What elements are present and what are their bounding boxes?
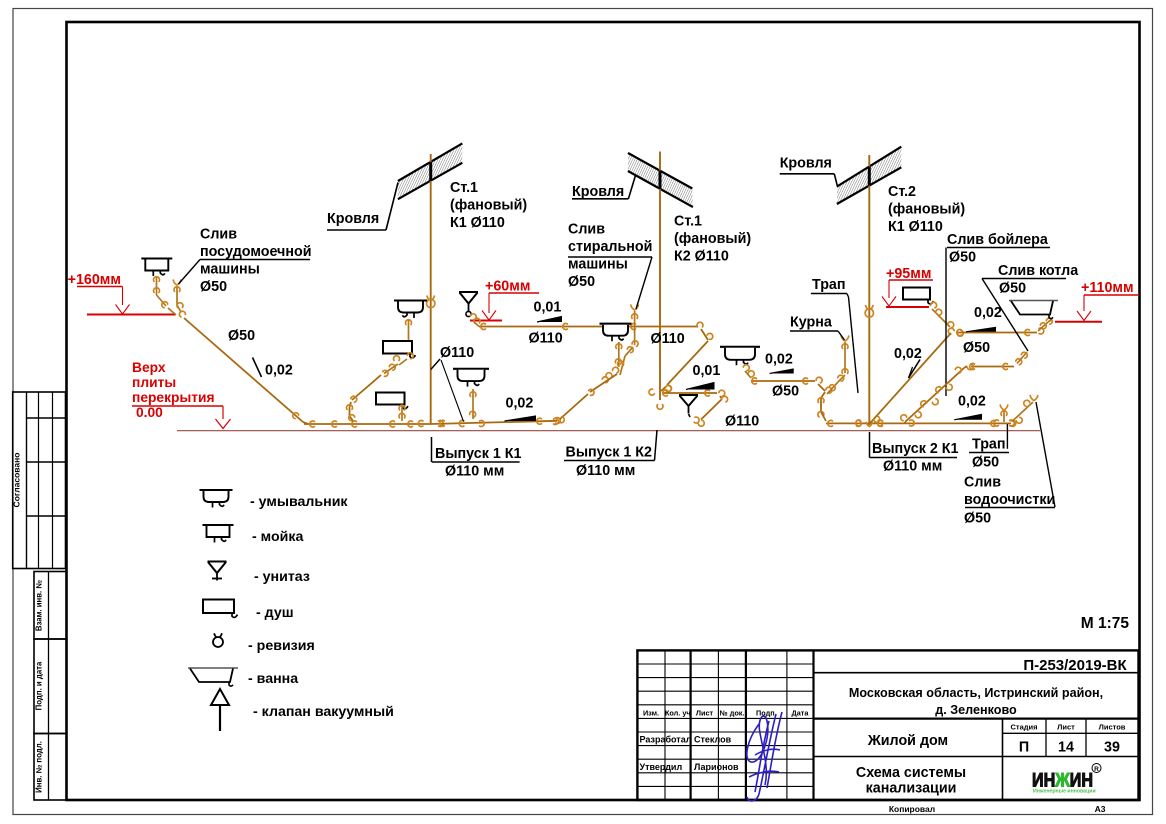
- svg-text:Ø50: Ø50: [964, 511, 991, 527]
- svg-text:М 1:75: М 1:75: [1081, 615, 1130, 632]
- svg-text:П-253/2019-ВК: П-253/2019-ВК: [1023, 657, 1127, 674]
- svg-text:Ø50: Ø50: [972, 455, 999, 471]
- svg-text:Ø50: Ø50: [200, 279, 227, 295]
- svg-text:Слив: Слив: [568, 222, 605, 238]
- svg-text:14: 14: [1058, 740, 1074, 756]
- svg-text:Московская область, Истринский: Московская область, Истринский район,: [849, 686, 1103, 700]
- svg-text:Ø110: Ø110: [725, 414, 759, 430]
- svg-text:посудомоечной: посудомоечной: [200, 244, 312, 260]
- svg-text:Инженерные инновации: Инженерные инновации: [1033, 789, 1096, 795]
- svg-text:Подп. и дата: Подп. и дата: [35, 661, 44, 710]
- svg-text:(фановый): (фановый): [888, 202, 965, 218]
- svg-text:- клапан вакуумный: - клапан вакуумный: [253, 704, 394, 720]
- svg-text:Ст.2: Ст.2: [888, 184, 916, 200]
- svg-text:(фановый): (фановый): [674, 231, 751, 247]
- svg-text:Выпуск 1 К2: Выпуск 1 К2: [566, 445, 652, 461]
- svg-text:Ст.1: Ст.1: [450, 180, 478, 196]
- svg-text:№ док.: № док.: [720, 709, 745, 718]
- svg-text:Стадия: Стадия: [1010, 723, 1037, 732]
- svg-text:Дата: Дата: [792, 709, 810, 718]
- svg-text:Слив: Слив: [964, 475, 1001, 491]
- svg-text:Ø110 мм: Ø110 мм: [576, 463, 635, 479]
- svg-text:К2 Ø110: К2 Ø110: [674, 249, 729, 265]
- svg-text:К1 Ø110: К1 Ø110: [888, 219, 943, 235]
- svg-text:Ø110: Ø110: [651, 331, 685, 347]
- svg-text:Трап: Трап: [812, 277, 846, 293]
- svg-text:0,01: 0,01: [534, 300, 562, 316]
- svg-text:0,02: 0,02: [894, 346, 922, 362]
- svg-text:Кровля: Кровля: [572, 184, 624, 200]
- svg-text:Лист: Лист: [1057, 723, 1075, 732]
- svg-text:Ø110: Ø110: [529, 331, 563, 347]
- svg-text:Разработал: Разработал: [640, 735, 692, 745]
- svg-text:39: 39: [1104, 740, 1120, 756]
- svg-text:0,02: 0,02: [974, 305, 1002, 321]
- svg-text:Взам. инв. №: Взам. инв. №: [35, 580, 44, 631]
- svg-text:+60мм: +60мм: [485, 279, 530, 295]
- svg-text:Ø50: Ø50: [568, 274, 595, 290]
- svg-text:д. Зеленково: д. Зеленково: [935, 703, 1017, 717]
- svg-text:Ст.1: Ст.1: [674, 214, 702, 230]
- svg-text:0,01: 0,01: [693, 363, 721, 379]
- svg-text:0,02: 0,02: [265, 363, 293, 379]
- svg-text:водоочистки: водоочистки: [964, 492, 1055, 508]
- svg-text:Ø50: Ø50: [949, 250, 976, 266]
- svg-text:Кол. уч: Кол. уч: [665, 709, 691, 718]
- svg-text:Ø50: Ø50: [999, 281, 1026, 297]
- svg-text:П: П: [1019, 740, 1029, 756]
- svg-text:Ø50: Ø50: [228, 328, 255, 344]
- svg-text:Листов: Листов: [1099, 723, 1126, 732]
- svg-text:Инв. № подл.: Инв. № подл.: [35, 741, 44, 793]
- svg-text:0,02: 0,02: [958, 394, 986, 410]
- svg-text:Трап: Трап: [972, 437, 1006, 453]
- svg-text:0,02: 0,02: [765, 352, 793, 368]
- svg-text:Согласовано: Согласовано: [12, 453, 22, 508]
- svg-text:Изм.: Изм.: [643, 709, 659, 718]
- svg-text:- мойка: - мойка: [252, 529, 303, 545]
- svg-text:Стеклов: Стеклов: [694, 735, 732, 745]
- svg-text:Ø50: Ø50: [963, 340, 990, 356]
- svg-text:- ванна: - ванна: [248, 671, 298, 687]
- svg-text:Верх: Верх: [132, 360, 166, 375]
- svg-text:+110мм: +110мм: [1081, 280, 1134, 296]
- svg-text:Кровля: Кровля: [780, 156, 832, 172]
- svg-text:Ø50: Ø50: [772, 384, 799, 400]
- svg-text:- ревизия: - ревизия: [248, 638, 315, 654]
- svg-text:Кровля: Кровля: [327, 211, 379, 227]
- svg-text:Копировал: Копировал: [889, 804, 935, 814]
- svg-text:канализации: канализации: [866, 781, 957, 797]
- svg-text:Схема системы: Схема системы: [856, 765, 966, 781]
- svg-text:0,02: 0,02: [506, 396, 534, 412]
- svg-text:- унитаз: - унитаз: [254, 569, 310, 585]
- svg-text:Ø110 мм: Ø110 мм: [445, 464, 504, 480]
- svg-text:R: R: [1094, 766, 1099, 773]
- svg-text:Слив: Слив: [200, 227, 237, 243]
- svg-text:А3: А3: [1095, 804, 1106, 814]
- svg-text:Слив котла: Слив котла: [998, 263, 1079, 279]
- svg-text:+160мм: +160мм: [68, 272, 121, 288]
- svg-text:- умывальник: - умывальник: [250, 494, 348, 510]
- svg-text:машины: машины: [200, 262, 260, 278]
- svg-text:Ø110 мм: Ø110 мм: [883, 459, 942, 475]
- svg-text:- душ: - душ: [256, 605, 294, 621]
- svg-text:машины: машины: [568, 257, 628, 273]
- svg-text:Ø110: Ø110: [440, 345, 474, 361]
- svg-text:Подп.: Подп.: [756, 709, 777, 718]
- svg-text:Слив бойлера: Слив бойлера: [947, 232, 1049, 248]
- svg-text:перекрытия: перекрытия: [132, 390, 215, 405]
- svg-text:Ларионов: Ларионов: [694, 762, 739, 772]
- svg-text:Жилой дом: Жилой дом: [867, 733, 948, 749]
- svg-text:0.00: 0.00: [136, 405, 163, 420]
- svg-text:Лист: Лист: [696, 709, 714, 718]
- svg-text:(фановый): (фановый): [450, 198, 527, 214]
- svg-text:стиральной: стиральной: [568, 239, 652, 255]
- svg-text:К1 Ø110: К1 Ø110: [450, 215, 505, 231]
- svg-text:Утвердил: Утвердил: [640, 762, 683, 772]
- svg-text:Курна: Курна: [790, 315, 833, 331]
- svg-text:Выпуск 1 К1: Выпуск 1 К1: [435, 446, 521, 462]
- svg-text:плиты: плиты: [132, 375, 176, 390]
- svg-text:Выпуск 2 К1: Выпуск 2 К1: [872, 441, 958, 457]
